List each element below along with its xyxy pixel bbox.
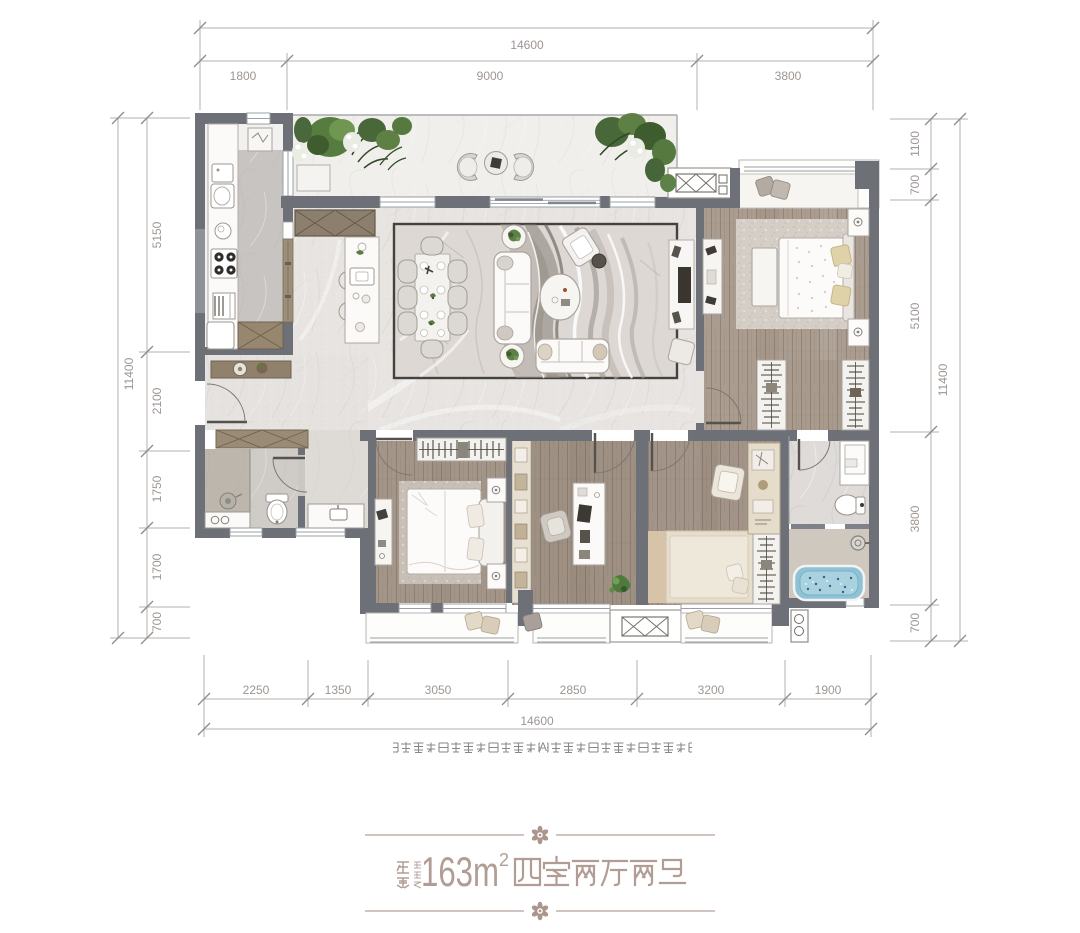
svg-text:2100: 2100 (150, 387, 164, 414)
svg-text:163m: 163m (421, 848, 499, 895)
svg-text:11400: 11400 (936, 363, 950, 396)
svg-text:1900: 1900 (815, 683, 842, 697)
svg-text:3800: 3800 (775, 69, 802, 83)
svg-text:1350: 1350 (325, 683, 352, 697)
svg-text:2850: 2850 (560, 683, 587, 697)
svg-text:2: 2 (499, 850, 509, 870)
svg-text:1700: 1700 (150, 553, 164, 580)
svg-text:3200: 3200 (698, 683, 725, 697)
svg-text:700: 700 (908, 613, 922, 633)
svg-text:5100: 5100 (908, 302, 922, 329)
svg-text:11400: 11400 (122, 357, 136, 390)
svg-text:2250: 2250 (243, 683, 270, 697)
svg-text:1800: 1800 (230, 69, 257, 83)
svg-text:3800: 3800 (908, 505, 922, 532)
svg-text:1100: 1100 (908, 131, 922, 157)
svg-text:5150: 5150 (150, 221, 164, 248)
svg-text:14600: 14600 (510, 38, 544, 52)
svg-text:9000: 9000 (477, 69, 504, 83)
svg-text:1750: 1750 (150, 475, 164, 502)
svg-text:700: 700 (150, 612, 164, 632)
svg-text:700: 700 (908, 175, 922, 195)
svg-text:A: A (539, 740, 547, 754)
svg-text:3050: 3050 (425, 683, 452, 697)
svg-text:14600: 14600 (520, 714, 554, 728)
